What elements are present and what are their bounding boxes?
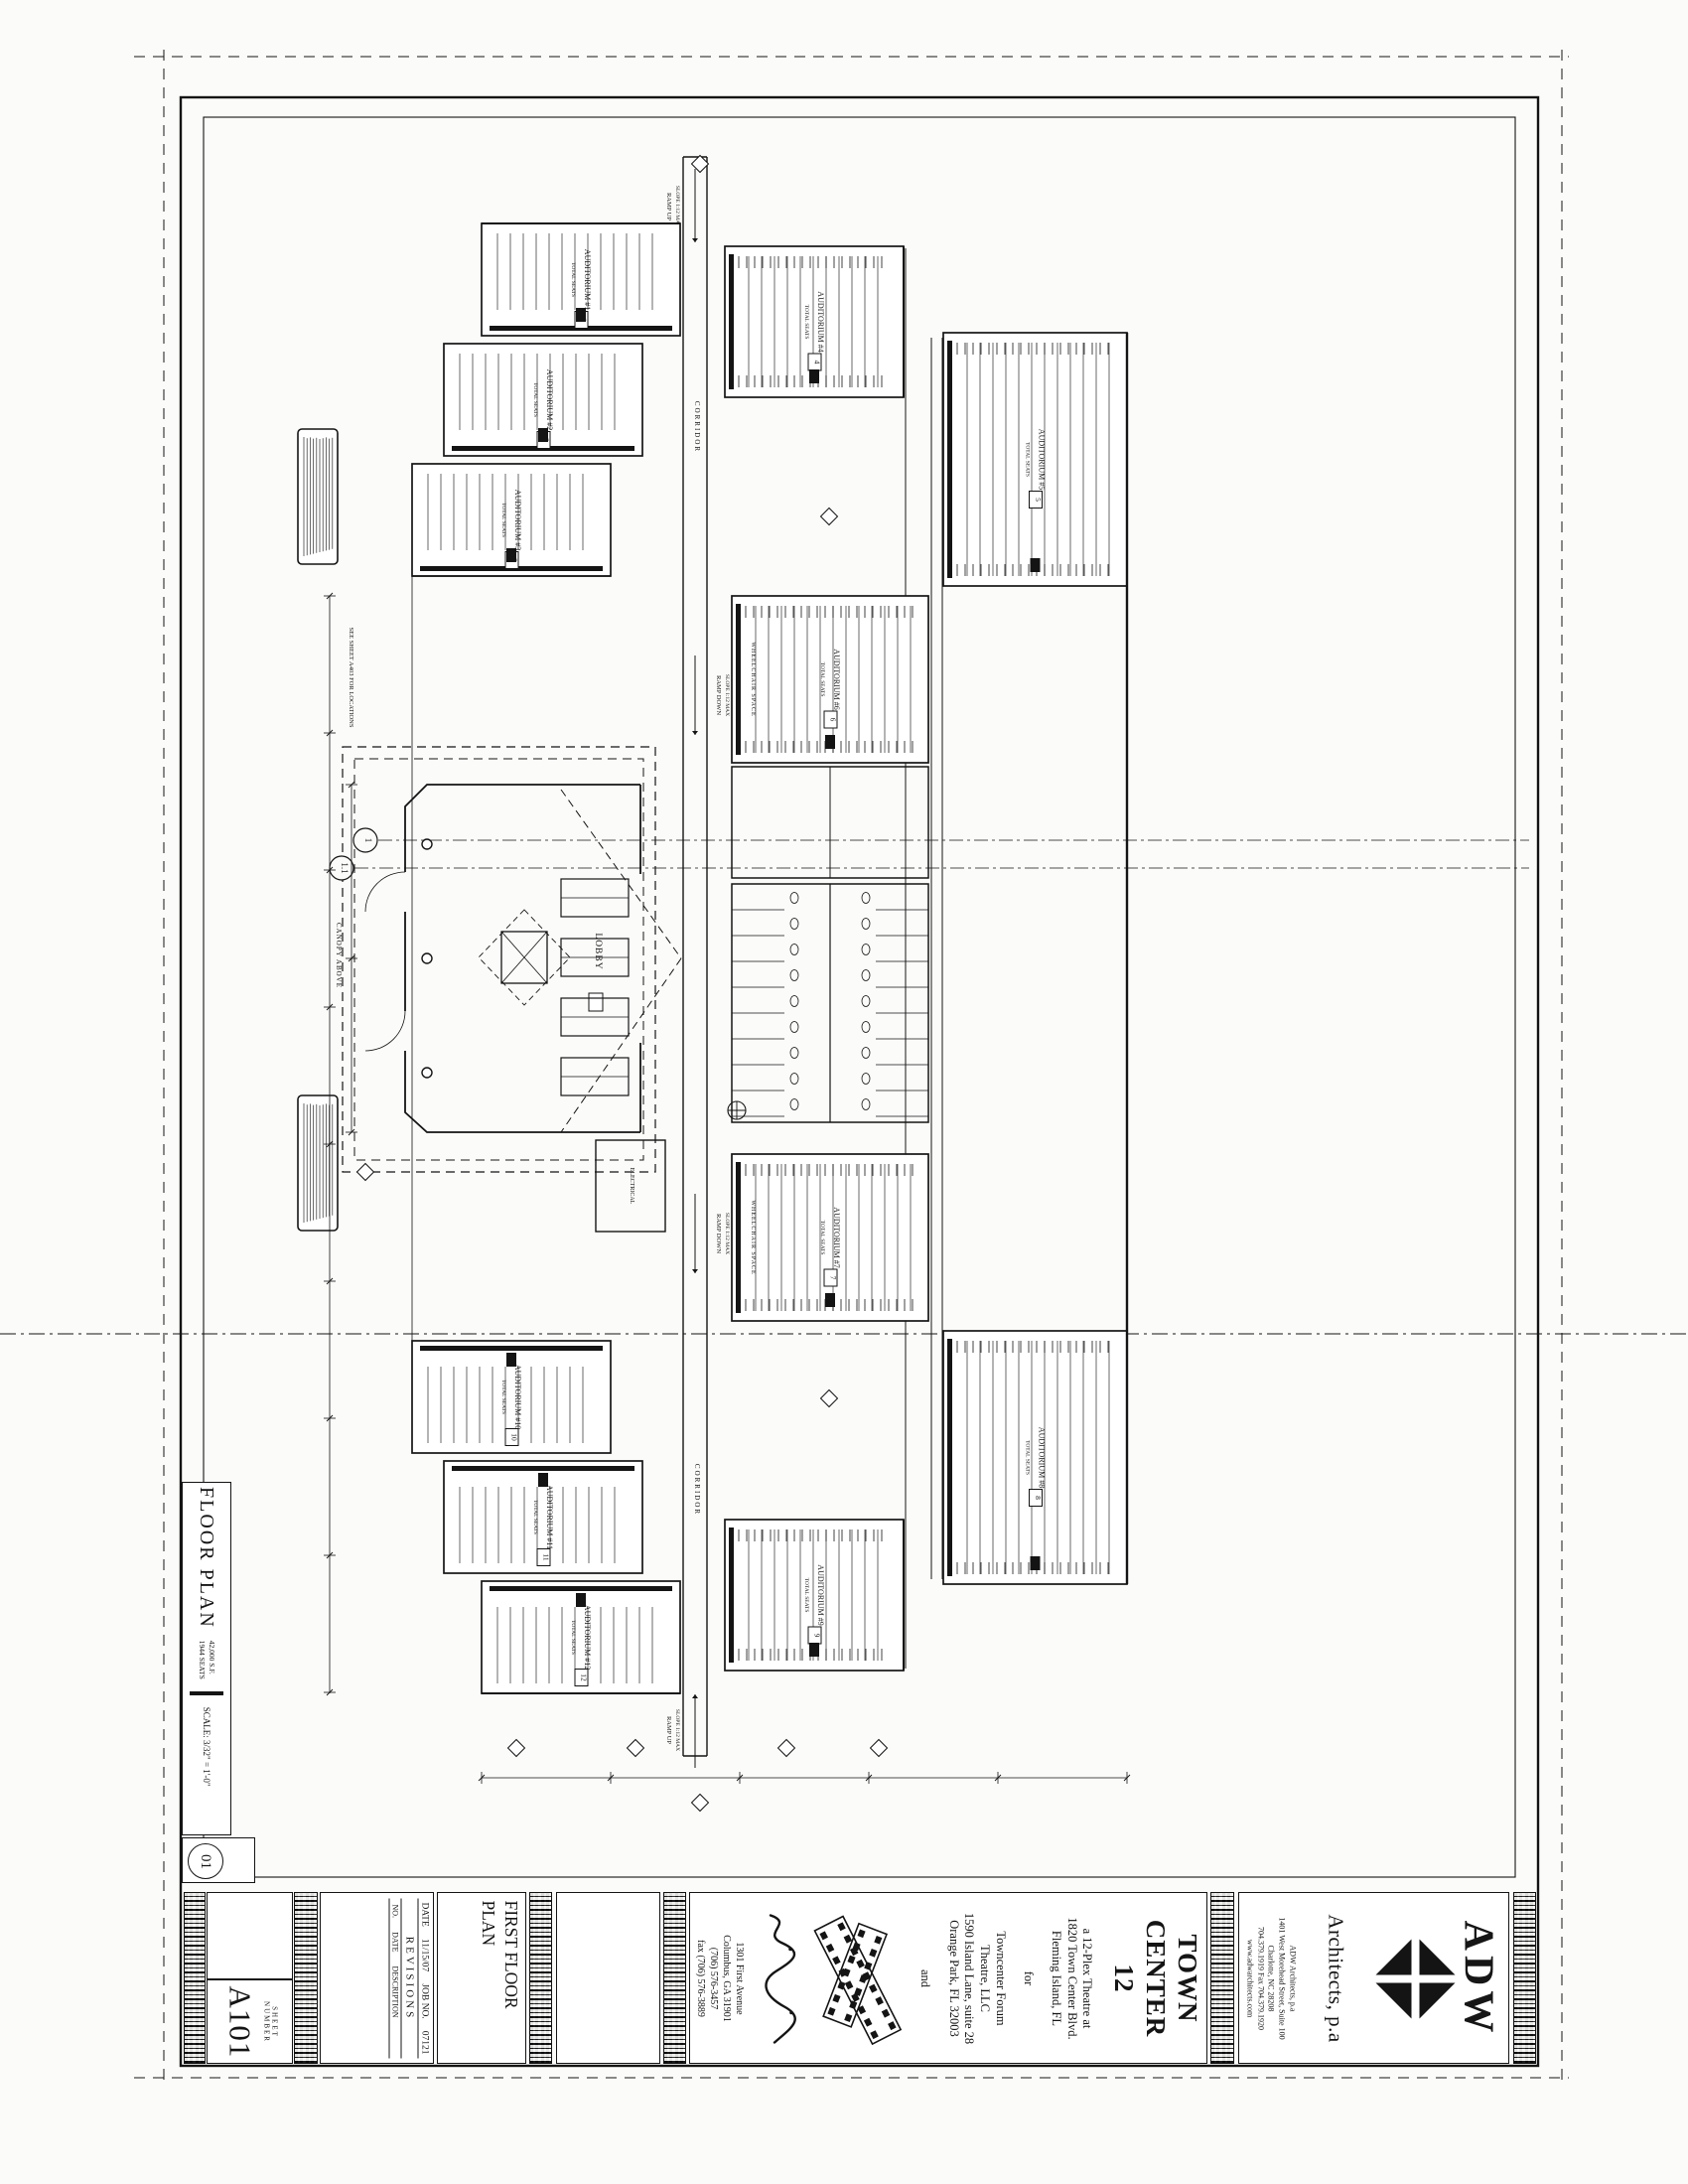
svg-text:TOTAL SEATS: TOTAL SEATS <box>819 1221 825 1255</box>
svg-text:TOTAL SEATS: TOTAL SEATS <box>570 1620 576 1655</box>
svg-text:7: 7 <box>829 1276 838 1280</box>
toilet-core <box>732 767 928 1122</box>
keynote-diamond <box>628 1740 644 1757</box>
svg-text:TOTAL SEATS: TOTAL SEATS <box>819 662 825 697</box>
for-label: for <box>1021 1970 1036 1985</box>
svg-text:TOTAL SEATS: TOTAL SEATS <box>803 1578 809 1613</box>
svg-text:TOTAL SEATS: TOTAL SEATS <box>532 382 538 417</box>
note-box <box>298 429 338 564</box>
sheet-number-label: SHEET NUMBER <box>262 1983 278 2060</box>
note-reference: SEE SHEET A403 FOR LOCATIONS <box>348 627 354 727</box>
drawing-sheet: CANOPY ABOVE11.1CORRIDORCORRIDORRAMP UPS… <box>0 0 1688 2184</box>
auditorium: AUDITORIUM #5TOTAL SEATS5 <box>943 333 1127 586</box>
speaker <box>576 308 586 322</box>
revisions-label: REVISIONS <box>400 1898 417 2058</box>
architect-name: Architects, p.a <box>1323 1914 1347 2042</box>
scan-strip <box>294 1892 318 2064</box>
auditorium: AUDITORIUM #6TOTAL SEATS6 <box>732 596 928 763</box>
svg-text:TOTAL SEATS: TOTAL SEATS <box>570 262 576 297</box>
speaker <box>825 1293 835 1307</box>
sheet-number: A101 <box>221 1985 257 2058</box>
svg-text:SLOPE 1:12 MAX: SLOPE 1:12 MAX <box>724 1213 730 1254</box>
scan-strip <box>1210 1892 1234 2064</box>
svg-text:AUDITORIUM #5: AUDITORIUM #5 <box>1038 429 1047 490</box>
svg-text:AUDITORIUM #3: AUDITORIUM #3 <box>513 490 522 550</box>
door-swing <box>365 1011 405 1051</box>
svg-text:9: 9 <box>813 1634 822 1638</box>
lobby: LOBBY <box>365 785 640 1132</box>
svg-text:12: 12 <box>580 1674 589 1681</box>
svg-text:CORRIDOR: CORRIDOR <box>693 401 701 453</box>
svg-text:ELECTRICAL: ELECTRICAL <box>629 1168 634 1205</box>
svg-text:RAMP DOWN: RAMP DOWN <box>715 675 722 715</box>
speaker <box>576 1593 586 1607</box>
auditorium: AUDITORIUM #2TOTAL SEATS2 <box>444 344 642 456</box>
keynote-diamond <box>871 1740 888 1757</box>
grid-bubble: 1.1 <box>330 856 1529 880</box>
drawing-title-block: FLOOR PLAN 42,000 S.F. 1944 SEATS SCALE:… <box>182 1482 231 1835</box>
speaker <box>1031 558 1041 572</box>
drawing-title: FLOOR PLAN <box>196 1487 218 1629</box>
speaker <box>1031 1556 1041 1570</box>
ramp-label: RAMP DOWNSLOPE 1:12 MAX <box>692 655 730 735</box>
svg-text:AUDITORIUM #2: AUDITORIUM #2 <box>545 369 554 430</box>
svg-text:SEE SHEET A403 FOR LOCATIONS: SEE SHEET A403 FOR LOCATIONS <box>348 627 354 727</box>
date-job-row: DATE 11/15/07 JOB NO. 07121 <box>417 1898 430 2058</box>
auditorium: AUDITORIUM #9TOTAL SEATS9 <box>725 1520 904 1671</box>
detail-number-bubble: 01 <box>182 1837 255 1883</box>
svg-text:AUDITORIUM #9: AUDITORIUM #9 <box>816 1564 825 1625</box>
sheet-number-box: SHEET NUMBER A101 <box>207 1979 293 2064</box>
svg-text:CANOPY ABOVE: CANOPY ABOVE <box>335 923 343 988</box>
svg-text:AUDITORIUM #12: AUDITORIUM #12 <box>583 1605 592 1670</box>
svg-text:TOTAL SEATS: TOTAL SEATS <box>500 503 506 537</box>
auditorium: AUDITORIUM #7TOTAL SEATS7 <box>732 1154 928 1321</box>
door-swing <box>365 872 405 912</box>
speaker <box>809 369 819 383</box>
svg-text:TOTAL SEATS: TOTAL SEATS <box>1025 1440 1031 1475</box>
wheelchair-label: WHEELCHAIR SPACE <box>750 1200 756 1274</box>
revisions-box: DATE 11/15/07 JOB NO. 07121 REVISIONS NO… <box>320 1892 434 2064</box>
scan-strip <box>1513 1892 1536 2064</box>
svg-text:SLOPE 1:12 MAX: SLOPE 1:12 MAX <box>674 1709 680 1751</box>
svg-text:1.1: 1.1 <box>340 862 350 873</box>
column <box>422 953 432 963</box>
sheet-number-box-blank <box>207 1892 293 1979</box>
svg-text:AUDITORIUM #8: AUDITORIUM #8 <box>1038 1427 1047 1488</box>
auditorium: AUDITORIUM #1TOTAL SEATS1 <box>482 223 680 336</box>
svg-text:SLOPE 1:12 MAX: SLOPE 1:12 MAX <box>724 674 730 716</box>
svg-text:WHEELCHAIR SPACE: WHEELCHAIR SPACE <box>750 642 756 716</box>
speaker <box>825 735 835 749</box>
svg-text:TOTAL SEATS: TOTAL SEATS <box>500 1380 506 1414</box>
scan-strip <box>663 1892 686 2064</box>
ramp-label: RAMP UPSLOPE 1:12 MAX <box>665 1694 698 1768</box>
note-box <box>298 1095 338 1231</box>
svg-text:TOTAL SEATS: TOTAL SEATS <box>532 1500 538 1534</box>
auditorium: AUDITORIUM #3TOTAL SEATS3 <box>412 464 611 576</box>
svg-text:TOTAL SEATS: TOTAL SEATS <box>1025 442 1031 477</box>
column <box>422 1068 432 1078</box>
ramp-label: RAMP DOWNSLOPE 1:12 MAX <box>692 1194 730 1273</box>
wheelchair-label: WHEELCHAIR SPACE <box>750 642 756 716</box>
scan-strip <box>184 1892 206 2064</box>
svg-text:WHEELCHAIR SPACE: WHEELCHAIR SPACE <box>750 1200 756 1274</box>
svg-text:5: 5 <box>1034 498 1043 502</box>
svg-text:8: 8 <box>1034 1496 1043 1500</box>
speaker <box>506 548 516 562</box>
svg-text:AUDITORIUM #10: AUDITORIUM #10 <box>513 1365 522 1429</box>
keynote-diamond <box>357 1164 374 1181</box>
adw-diamond-logo: ADW <box>1373 1899 1504 2058</box>
operator-script-logo <box>759 1909 800 2048</box>
auditorium: AUDITORIUM #12TOTAL SEATS12 <box>482 1581 680 1693</box>
svg-text:RAMP UP: RAMP UP <box>665 193 672 221</box>
svg-text:RAMP UP: RAMP UP <box>665 1716 672 1745</box>
sheet-title: FIRST FLOOR PLAN <box>478 1900 523 2008</box>
auditorium: AUDITORIUM #10TOTAL SEATS10 <box>412 1341 611 1453</box>
svg-text:1: 1 <box>363 838 373 843</box>
keynote-diamond <box>692 1795 709 1812</box>
keynote-diamond <box>821 509 838 525</box>
sheet-title-box: FIRST FLOOR PLAN <box>437 1892 526 2064</box>
speaker <box>538 1473 548 1487</box>
auditorium: AUDITORIUM #4TOTAL SEATS4 <box>725 246 904 397</box>
speaker <box>506 1353 516 1367</box>
project-box: TOWN CENTER 12 a 12-Plex Theatre at 1820… <box>689 1892 1207 2064</box>
speaker <box>538 428 548 442</box>
auditorium: AUDITORIUM #11TOTAL SEATS11 <box>444 1461 642 1573</box>
svg-text:10: 10 <box>510 1433 519 1441</box>
auditorium: AUDITORIUM #8TOTAL SEATS8 <box>943 1331 1127 1584</box>
architect-info: ADW Architects, p.a 1401 West Morehead S… <box>1243 1917 1297 2039</box>
speaker <box>809 1643 819 1657</box>
blank-box <box>556 1892 660 2064</box>
svg-text:TOTAL SEATS: TOTAL SEATS <box>803 305 809 340</box>
operator-address: 1301 First Avenue Columbus, GA 31901 (70… <box>694 1935 746 2022</box>
svg-text:CORRIDOR: CORRIDOR <box>693 1464 701 1516</box>
and-label: and <box>917 1968 932 1986</box>
drawing-area-seats: 42,000 S.F. 1944 SEATS <box>197 1641 216 1679</box>
adw-monogram: ADW <box>1455 1920 1500 2037</box>
revisions-table-header: NO. DATE DESCRIPTION <box>388 1898 400 2058</box>
scan-strip <box>529 1892 552 2064</box>
svg-text:RAMP DOWN: RAMP DOWN <box>715 1214 722 1253</box>
job-number: 07121 <box>419 2030 429 2054</box>
svg-text:AUDITORIUM #6: AUDITORIUM #6 <box>832 649 841 709</box>
filmstrip-logo <box>813 1904 905 2053</box>
svg-text:6: 6 <box>829 718 838 722</box>
keynote-diamond <box>692 156 709 173</box>
project-description: a 12-Plex Theatre at 1820 Town Center Bl… <box>1049 1917 1095 2039</box>
svg-text:SLOPE 1:12 MAX: SLOPE 1:12 MAX <box>674 186 680 227</box>
divider <box>190 1691 223 1695</box>
svg-text:AUDITORIUM #4: AUDITORIUM #4 <box>816 291 825 352</box>
canopy-line: CANOPY ABOVE <box>335 747 681 1172</box>
svg-text:4: 4 <box>813 361 822 364</box>
grid-bubble: 1 <box>353 828 1529 852</box>
drawing-scale: SCALE: 3/32" = 1'-0" <box>202 1707 211 1787</box>
architect-box: ADW Architects, p.a ADW Architects, p.a … <box>1238 1892 1509 2064</box>
project-name: TOWN CENTER 12 <box>1107 1919 1202 2037</box>
svg-text:11: 11 <box>542 1553 551 1560</box>
keynote-diamond <box>778 1740 795 1757</box>
svg-text:AUDITORIUM #11: AUDITORIUM #11 <box>545 1485 554 1549</box>
keynote-diamond <box>508 1740 525 1757</box>
keynote-diamond <box>821 1390 838 1407</box>
svg-text:AUDITORIUM #1: AUDITORIUM #1 <box>583 249 592 310</box>
column <box>422 839 432 849</box>
svg-text:AUDITORIUM #7: AUDITORIUM #7 <box>832 1207 841 1267</box>
issue-date: 11/15/07 <box>419 1938 429 1970</box>
owner-block: Towncenter Forum Theatre, LLC 1590 Islan… <box>945 1912 1008 2043</box>
